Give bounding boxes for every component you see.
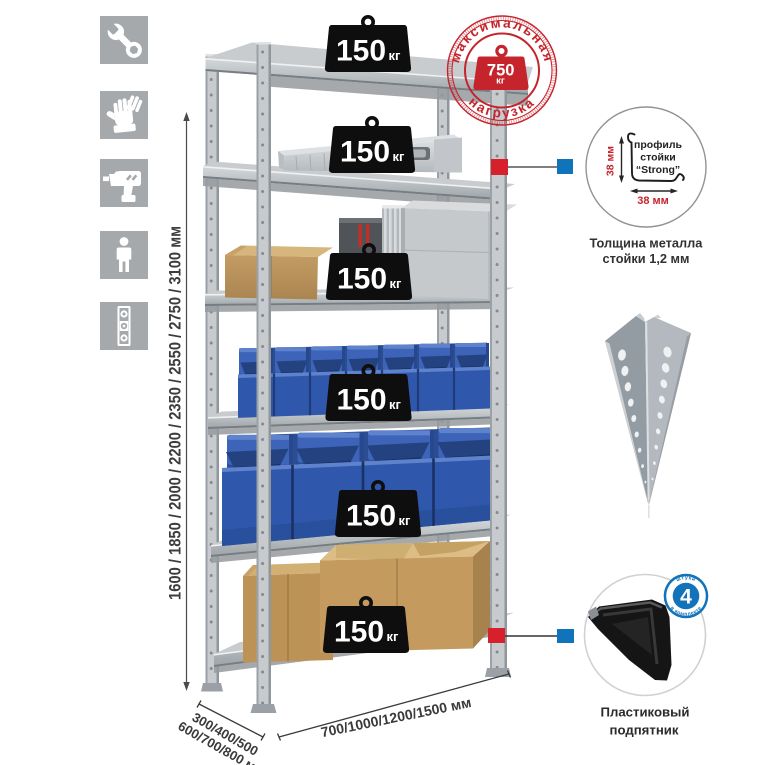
svg-text:стойки: стойки (640, 152, 675, 164)
svg-text:профиль: профиль (634, 139, 682, 151)
svg-text:38 мм: 38 мм (637, 195, 669, 207)
svg-text:150: 150 (336, 35, 386, 68)
svg-text:кг: кг (387, 629, 400, 644)
svg-text:стойки 1,2 мм: стойки 1,2 мм (602, 251, 689, 266)
svg-text:150: 150 (336, 384, 386, 417)
svg-text:кг: кг (399, 513, 412, 528)
svg-text:Толщина металла: Толщина металла (590, 236, 704, 251)
svg-text:кг: кг (393, 149, 406, 164)
svg-text:кг: кг (390, 276, 403, 291)
svg-text:150: 150 (346, 500, 396, 533)
svg-text:кг: кг (389, 397, 402, 412)
svg-text:“Strong”: “Strong” (636, 164, 680, 176)
svg-text:подпятник: подпятник (609, 723, 678, 738)
svg-text:150: 150 (337, 263, 387, 296)
svg-text:38 мм: 38 мм (605, 146, 617, 176)
svg-text:150: 150 (334, 616, 384, 649)
svg-text:кг: кг (496, 76, 505, 87)
svg-text:1600 / 1850 / 2000 / 2200 / 23: 1600 / 1850 / 2000 / 2200 / 2350 / 2550 … (166, 226, 185, 600)
svg-text:150: 150 (340, 136, 390, 169)
svg-text:кг: кг (389, 48, 402, 63)
svg-text:Пластиковый: Пластиковый (600, 705, 689, 720)
svg-text:4: 4 (680, 586, 692, 609)
